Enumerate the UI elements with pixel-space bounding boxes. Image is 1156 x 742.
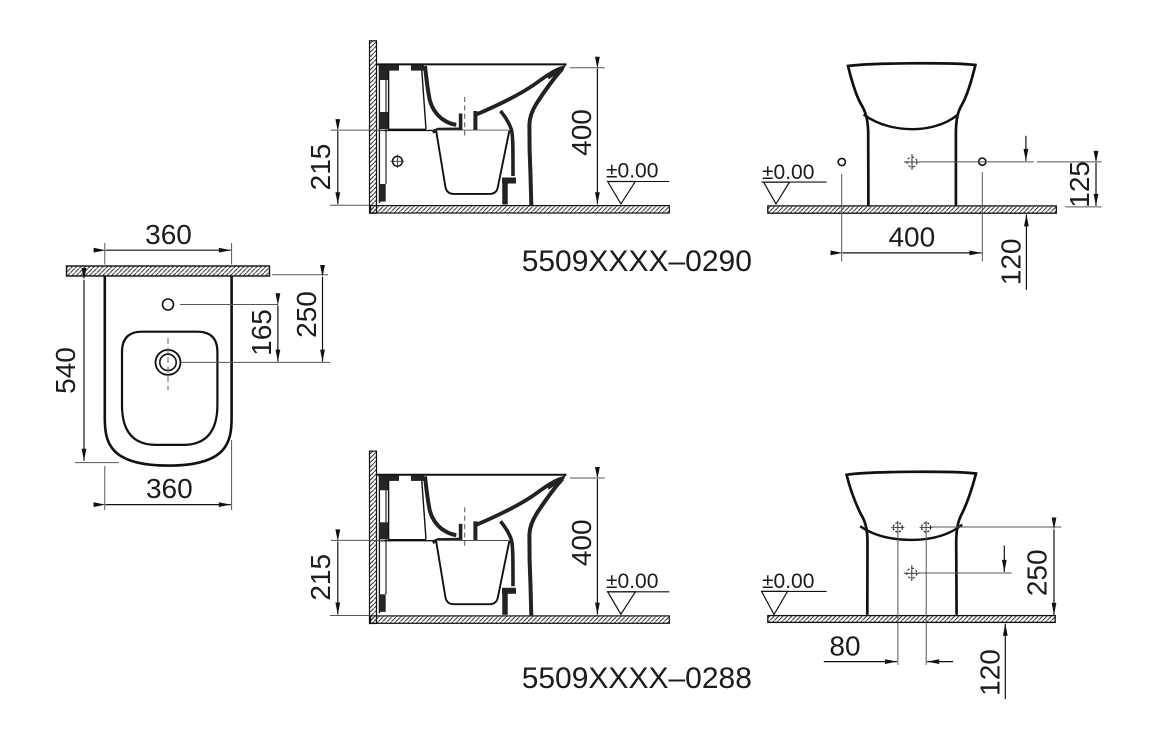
svg-text:5509XXXX–0288: 5509XXXX–0288 xyxy=(522,662,752,695)
svg-text:120: 120 xyxy=(995,239,1026,286)
svg-text:215: 215 xyxy=(305,554,336,601)
svg-text:250: 250 xyxy=(291,291,322,338)
svg-text:±0.00: ±0.00 xyxy=(762,570,814,593)
svg-text:165: 165 xyxy=(246,309,277,356)
svg-text:250: 250 xyxy=(1021,549,1052,596)
svg-text:120: 120 xyxy=(974,649,1005,696)
svg-text:360: 360 xyxy=(145,219,192,250)
svg-text:125: 125 xyxy=(1064,161,1095,208)
svg-text:5509XXXX–0290: 5509XXXX–0290 xyxy=(522,245,752,278)
svg-text:215: 215 xyxy=(305,144,336,191)
svg-text:400: 400 xyxy=(566,519,597,566)
svg-text:540: 540 xyxy=(50,347,81,394)
svg-text:±0.00: ±0.00 xyxy=(606,570,658,593)
svg-text:80: 80 xyxy=(829,631,860,662)
svg-text:±0.00: ±0.00 xyxy=(762,161,814,184)
svg-text:400: 400 xyxy=(566,109,597,156)
svg-text:±0.00: ±0.00 xyxy=(606,160,658,183)
svg-text:360: 360 xyxy=(146,473,193,504)
svg-text:400: 400 xyxy=(888,222,935,253)
